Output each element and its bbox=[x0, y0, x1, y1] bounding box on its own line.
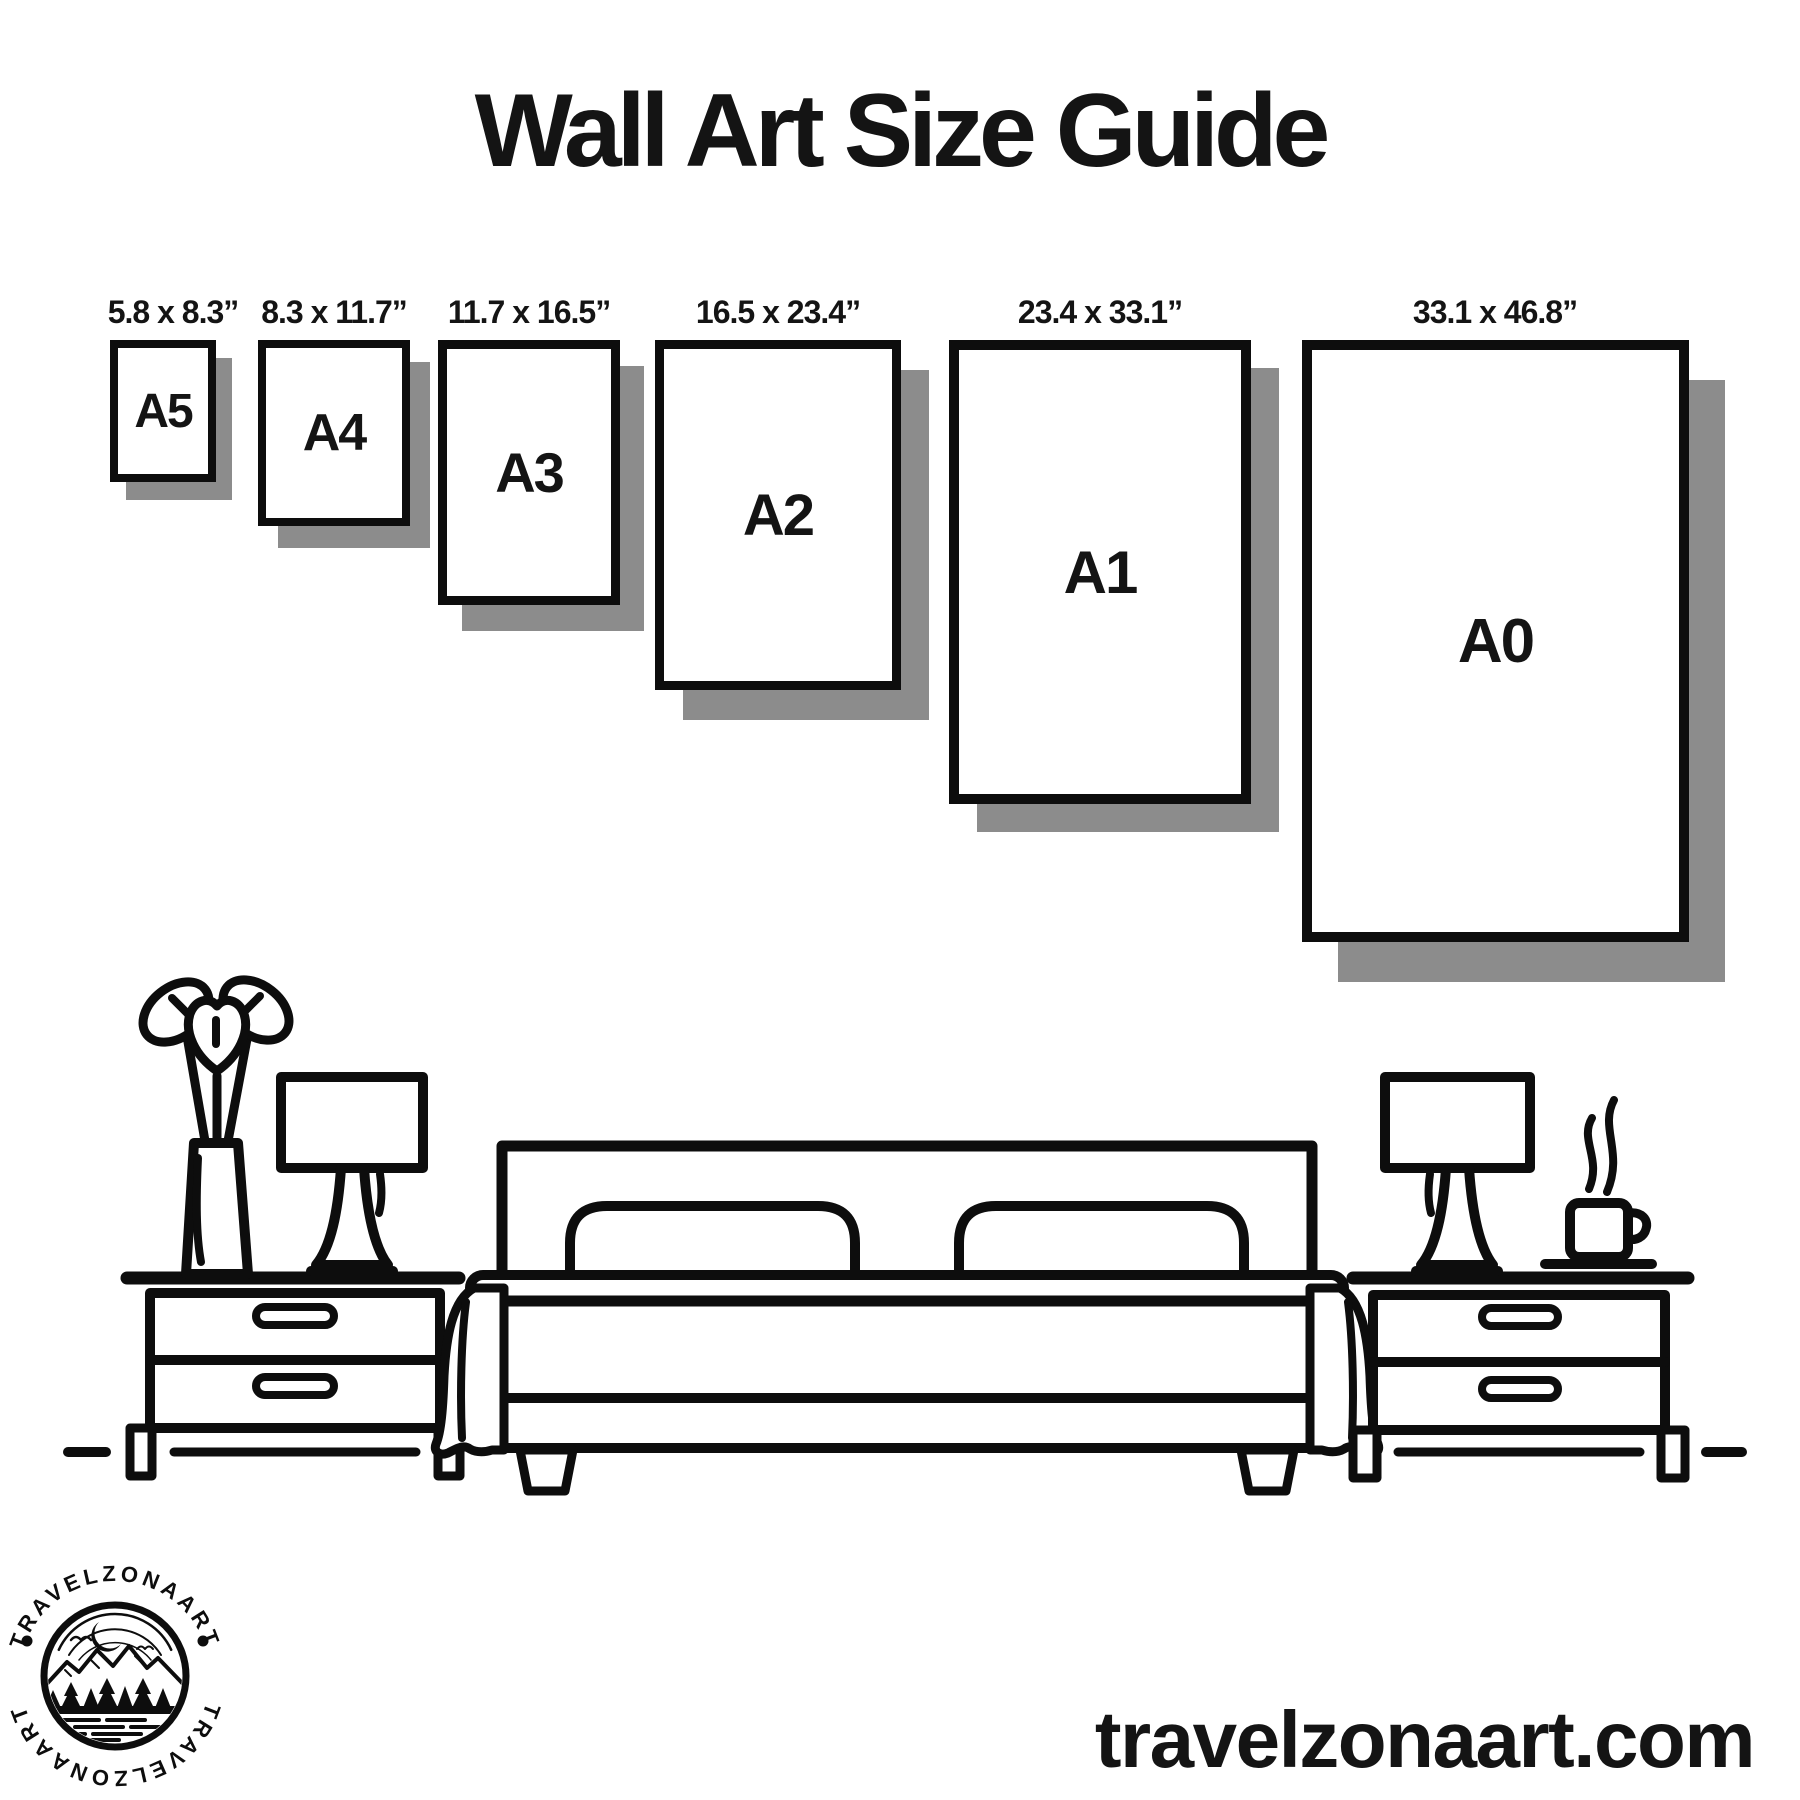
bedroom-scene-illustration: TRAVELZONAART TRAVELZONAART bbox=[0, 0, 1800, 1800]
double-bed-icon bbox=[470, 1146, 1344, 1491]
brand-logo-badge: TRAVELZONAART TRAVELZONAART bbox=[4, 1561, 225, 1792]
blanket-drape-left-icon bbox=[435, 1288, 504, 1454]
table-lamp-left-icon bbox=[281, 1077, 423, 1271]
table-lamp-right-icon bbox=[1385, 1077, 1530, 1271]
nightstand-left-icon bbox=[127, 1278, 460, 1476]
duvet bbox=[498, 1301, 1316, 1399]
website-url: travelzonaart.com bbox=[1095, 1694, 1754, 1786]
bed-base bbox=[502, 1398, 1312, 1448]
wall-art-size-guide-poster: Wall Art Size Guide 5.8 x 8.3” A5 8.3 x … bbox=[0, 0, 1800, 1800]
bed-leg-right bbox=[1241, 1450, 1294, 1491]
steam-icon bbox=[1588, 1100, 1614, 1192]
bed-leg-left bbox=[520, 1450, 573, 1491]
vase-plant-icon bbox=[131, 968, 300, 1274]
coffee-mug-icon bbox=[1545, 1100, 1652, 1264]
nightstand-right-icon bbox=[1353, 1278, 1688, 1478]
